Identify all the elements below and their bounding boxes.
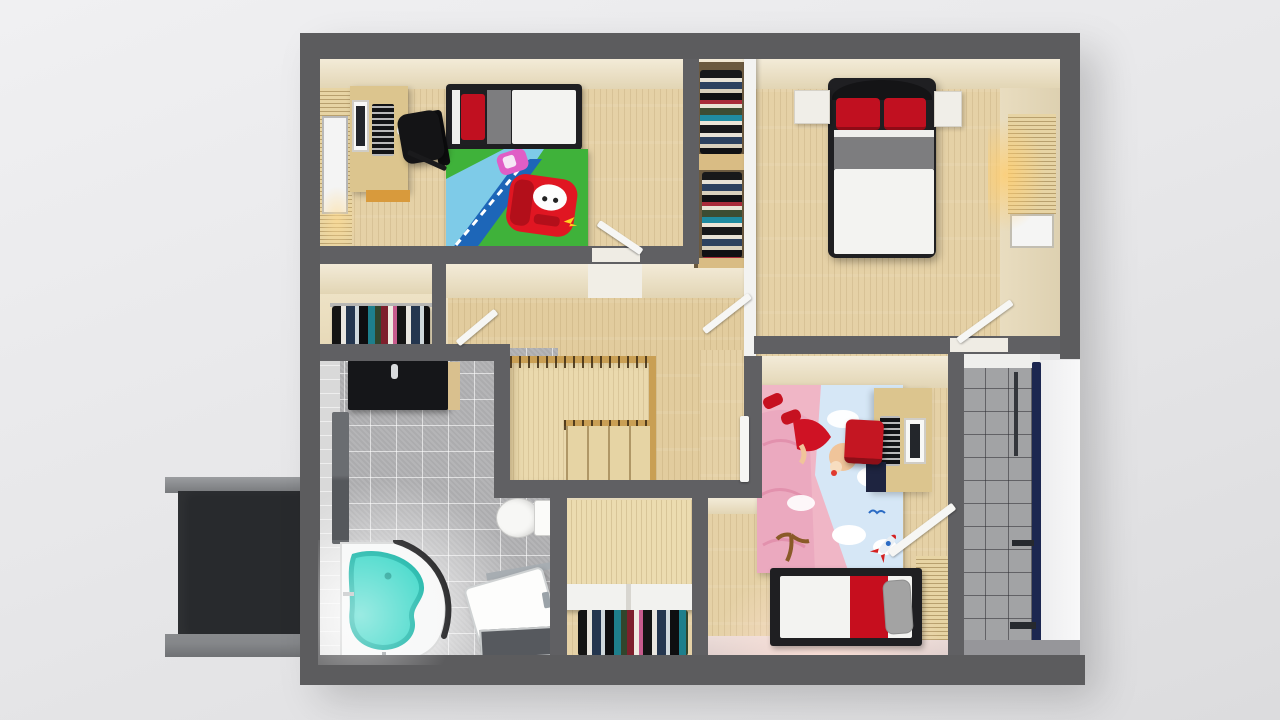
wardrobe-shelf-mid [698, 154, 744, 170]
balcony-threshold [962, 354, 1040, 368]
vanity-side-panel [448, 362, 460, 410]
bathroom-vanity [348, 360, 448, 410]
bathtub-drain [385, 573, 392, 580]
master-nightstand-right [934, 91, 962, 127]
wall-nook-east [432, 262, 446, 354]
master-bed-mattress [834, 169, 934, 254]
staircase-railing-right [649, 356, 656, 484]
wardrobe-folded-clothes-top [700, 70, 742, 154]
annex-bottom-trim [165, 634, 320, 657]
closet-nook-north-face [318, 264, 432, 294]
pink-red-chair [844, 419, 884, 465]
wall-bathroom-east [550, 486, 567, 664]
wall-bathroom-north [318, 344, 510, 361]
wardrobe-folded-clothes-bottom [702, 172, 742, 258]
wall-master-south [754, 336, 1078, 354]
hallway-east-door-leaf [740, 416, 749, 482]
wall-hallway-west [494, 344, 510, 498]
walkin-closet-hanging-clothes [578, 610, 688, 656]
kids-bed-mattress [512, 90, 576, 144]
exterior-wall-left [300, 33, 320, 665]
pink-bedroom-north-face [756, 356, 948, 388]
wall-closet-east [692, 486, 708, 664]
kids-bed-sheet-strip [452, 90, 460, 144]
walkin-closet-back-wall [566, 500, 692, 588]
staircase-lower-flight-steps [566, 426, 650, 484]
tall-cabinet [332, 412, 349, 544]
kids-bed-pillow [461, 94, 485, 140]
kids-bed-blanket [487, 90, 511, 144]
mural-cloud-5 [787, 495, 815, 511]
exterior-wall-right [1060, 33, 1080, 359]
exterior-wall-bottom [300, 655, 1085, 685]
wardrobe-shelf-base [698, 258, 744, 268]
balcony-support-bar-2 [1010, 622, 1036, 629]
mural-cloud-3 [832, 525, 866, 545]
master-pillow-right [884, 98, 926, 130]
balcony-support-bar-1 [1012, 540, 1034, 546]
wall-white-closet-partition [744, 50, 756, 362]
pink-desk-monitor-screen [910, 424, 920, 458]
master-pillow-left [836, 98, 880, 130]
balcony-tile-floor [962, 368, 1032, 642]
master-bed-sheet-strip [834, 130, 934, 137]
balcony-support-post [1014, 372, 1018, 456]
annex-roof [178, 491, 308, 639]
vanity-faucet-icon [391, 364, 398, 379]
staircase-balusters-top [510, 356, 654, 368]
wall-hallway-south [494, 480, 762, 498]
master-nightstand-left [794, 90, 830, 124]
corner-bathtub [338, 540, 464, 664]
walkin-closet-shelf-divider [626, 584, 631, 610]
nook-hanging-clothes [332, 306, 430, 348]
kids-bedroom-window-glow [316, 186, 358, 254]
bathtub-faucet-icon [343, 592, 354, 596]
staircase-well [508, 356, 656, 484]
wall-bedroom-divider [683, 33, 699, 264]
pink-desk-tower [866, 462, 886, 492]
kids-keyboard [372, 104, 394, 156]
kids-desk-under-shelf [366, 190, 410, 202]
floorplan-render [0, 0, 1280, 720]
exterior-wall-top [300, 33, 1080, 59]
cars-rug [446, 149, 588, 249]
hallway-north-door-opening [588, 264, 642, 298]
bathtub-water [351, 553, 421, 647]
pink-bedroom-west-ext-face [708, 498, 762, 514]
pink-bed-pillow [882, 579, 914, 635]
master-bed-blanket [834, 137, 934, 169]
master-window-glow [988, 118, 1046, 232]
balcony-railing [1032, 362, 1041, 652]
kids-monitor-screen [356, 106, 365, 146]
balcony-white-walkway [1040, 360, 1080, 652]
